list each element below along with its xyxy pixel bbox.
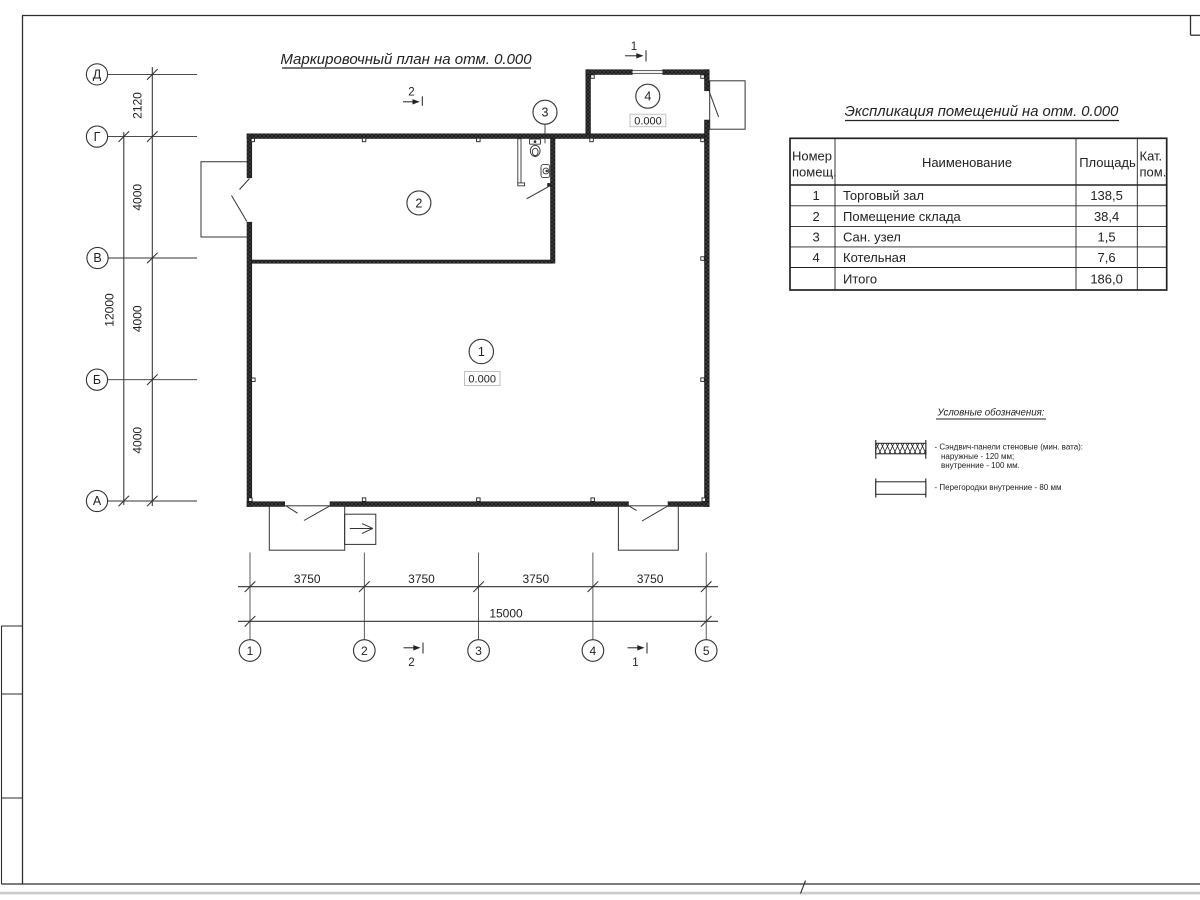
svg-text:1: 1 [631,41,637,53]
svg-text:Номер: Номер [792,149,832,164]
svg-text:3750: 3750 [637,572,664,586]
svg-text:3: 3 [475,644,482,658]
svg-text:2: 2 [415,196,422,210]
svg-text:0.000: 0.000 [634,115,662,127]
svg-text:Сан. узел: Сан. узел [843,229,901,244]
svg-text:- Перегородки внутренние - 80: - Перегородки внутренние - 80 мм [935,483,1062,492]
svg-text:внутренние - 100 мм.: внутренние - 100 мм. [941,461,1020,470]
svg-text:4: 4 [590,644,597,658]
svg-text:Г: Г [94,130,101,144]
svg-text:0.000: 0.000 [468,374,496,386]
svg-text:2: 2 [408,657,414,669]
svg-text:2: 2 [813,209,820,224]
svg-text:В: В [93,251,101,265]
svg-text:7,6: 7,6 [1098,250,1116,265]
svg-text:4000: 4000 [131,184,145,211]
svg-text:наружные - 120 мм;: наружные - 120 мм; [941,452,1014,461]
svg-text:2: 2 [361,644,368,658]
svg-text:1: 1 [478,345,485,359]
svg-text:Д: Д [93,68,102,82]
svg-text:1,5: 1,5 [1098,229,1116,244]
svg-text:Кат.: Кат. [1140,149,1163,164]
svg-text:пом.: пом. [1140,165,1167,180]
svg-text:Торговый зал: Торговый зал [843,188,924,203]
svg-text:4000: 4000 [131,305,145,332]
svg-text:1: 1 [813,188,820,203]
svg-text:помещ.: помещ. [792,165,837,180]
svg-text:Б: Б [93,373,101,387]
svg-text:38,4: 38,4 [1094,209,1119,224]
svg-text:Условные обозначения:: Условные обозначения: [937,408,1045,419]
svg-text:5: 5 [703,644,710,658]
svg-text:3: 3 [542,106,549,120]
svg-text:4: 4 [644,90,651,104]
svg-text:138,5: 138,5 [1090,188,1123,203]
svg-text:2: 2 [408,87,414,99]
svg-text:4000: 4000 [131,427,145,454]
svg-text:Котельная: Котельная [843,250,906,265]
svg-text:4: 4 [813,250,820,265]
svg-text:3750: 3750 [294,572,321,586]
svg-text:Площадь: Площадь [1079,155,1136,170]
svg-text:3: 3 [813,229,820,244]
svg-text:186,0: 186,0 [1090,272,1123,287]
svg-text:2120: 2120 [131,92,145,119]
svg-text:15000: 15000 [489,606,523,620]
svg-text:Экспликация помещений на отм.: Экспликация помещений на отм. 0.000 [845,104,1119,120]
svg-text:1: 1 [632,657,638,669]
svg-text:12000: 12000 [103,293,117,327]
svg-text:3750: 3750 [522,572,549,586]
svg-text:А: А [93,494,102,508]
svg-text:Маркировочный план на отм. 0.0: Маркировочный план на отм. 0.000 [280,51,532,68]
svg-text:Наименование: Наименование [922,155,1012,170]
svg-text:Итого: Итого [843,272,877,287]
svg-text:3750: 3750 [408,572,435,586]
svg-text:- Сэндвич-панели стеновые (мин: - Сэндвич-панели стеновые (мин. вата): [935,443,1084,452]
svg-text:1: 1 [247,644,254,658]
svg-text:Помещение склада: Помещение склада [843,209,962,224]
